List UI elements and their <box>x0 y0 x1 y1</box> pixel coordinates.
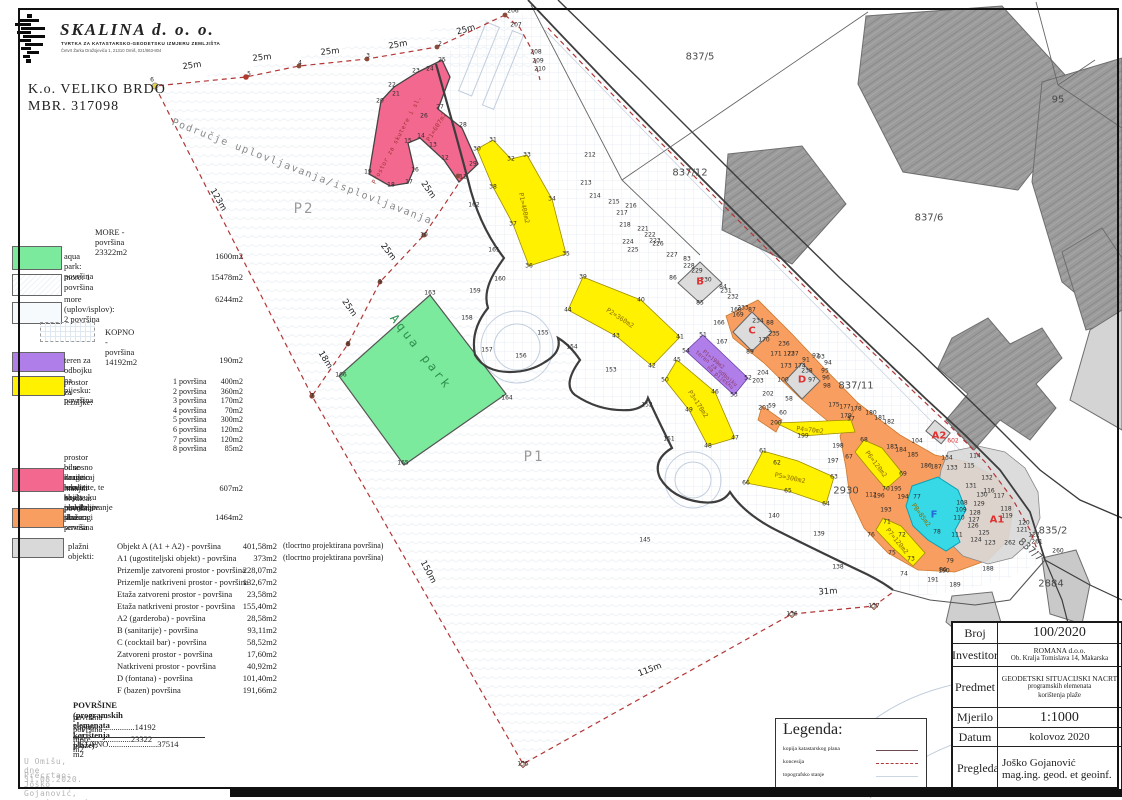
legend-kopno-title: KOPNO - površina 14192m2 <box>105 327 137 367</box>
objekti-row: Objekt A (A1 + A2) - površina401,58m2(tl… <box>117 541 427 553</box>
titleblock-pregledao-value: Joško Gojanović mag.ing. geod. et geoinf… <box>998 747 1121 790</box>
title-block: Broj 100/2020 Investitor ROMANA d.o.o. O… <box>951 621 1122 792</box>
titleblock-broj-label: Broj <box>953 623 998 644</box>
skuteri-value: 607m2 <box>183 483 243 493</box>
legenda-item-kopija: kopija katastarskog plana <box>783 746 840 752</box>
titleblock-investitor-label: Investitor <box>953 644 998 667</box>
titleblock-broj-value: 100/2020 <box>998 623 1121 644</box>
company-name: SKALINA d. o. o. <box>60 20 215 40</box>
scan-edge-bar <box>230 789 1122 797</box>
legenda-line-solid <box>876 750 918 751</box>
lezaljke-row: 2 površina360m2 <box>173 387 243 397</box>
legenda-title: Legenda: <box>783 721 843 739</box>
legend-more2-label: more (uplov/isplov): 2 površina <box>64 294 115 324</box>
lezaljke-row: 1 površina400m2 <box>173 377 243 387</box>
skalina-logo-icon <box>13 14 53 66</box>
objekti-row: Natkriveni prostor - površina40,92m2 <box>117 661 427 673</box>
legend-more1-value: 15478m2 <box>183 272 243 282</box>
objekti-row: Etaža zatvoreni prostor - površina23,58m… <box>117 589 427 601</box>
objekti-row: F (bazen) površina191,66m2 <box>117 685 427 697</box>
titleblock-investitor-value: ROMANA d.o.o. Ob. Kralja Tomislava 14, M… <box>998 644 1121 667</box>
lezaljke-row: 3 površina170m2 <box>173 396 243 406</box>
legend-terasa-label: terasa: površina <box>64 512 93 532</box>
objekti-row: Prizemlje natkriveni prostor - površina1… <box>117 577 427 589</box>
legend-objekti-rows: Objekt A (A1 + A2) - površina401,58m2(tl… <box>117 541 427 697</box>
titleblock-datum-label: Datum <box>953 728 998 747</box>
legend-more2-value: 6244m2 <box>183 294 243 304</box>
lezaljke-row: 7 površina120m2 <box>173 435 243 445</box>
lezaljke-row: 6 površina120m2 <box>173 425 243 435</box>
povrsine-divider <box>73 737 205 738</box>
mbr-number: MBR. 317098 <box>28 99 119 115</box>
swatch-lezaljke <box>12 376 65 396</box>
objekti-row: Prizemlje zatvoreni prostor - površina22… <box>117 565 427 577</box>
legend-objekti-label: plažni objekti: <box>68 541 94 561</box>
legenda-line-dashed <box>876 763 918 764</box>
lezaljke-row: 8 površina85m2 <box>173 444 243 454</box>
legend-lezaljke-rows: 1 površina400m22 površina360m23 površina… <box>173 377 243 454</box>
objekti-row: A2 (garderoba) - površina28,58m2 <box>117 613 427 625</box>
legenda-item-topografsko: topografsko stanje <box>783 772 824 778</box>
lezaljke-row: 4 površina70m2 <box>173 406 243 416</box>
legend-aqua-value: 1600m2 <box>183 251 243 261</box>
legend-terasa-value: 1464m2 <box>183 512 243 522</box>
skuteri-line4: manjih brodica: površina <box>64 483 93 513</box>
objekti-row: B (sanitarije) - površina93,11m2 <box>117 625 427 637</box>
titleblock-mjerilo-value: 1:1000 <box>998 708 1121 728</box>
company-subtitle: TVRTKA ZA KATASTARSKO-GEODETSKU IZMJERU … <box>61 41 220 46</box>
legend-more-title: MORE - površina 23322m2 <box>95 227 127 257</box>
legend-more1-label: more: 1 površina <box>64 272 93 292</box>
legenda-line-light <box>876 776 918 777</box>
lezaljke-row: 5 površina300m2 <box>173 415 243 425</box>
swatch-more-2 <box>12 302 62 324</box>
cadastral-plan-page: 2345678910111213141516171819202122232425… <box>0 0 1122 800</box>
objekti-row: D (fontana) - površina101,40m2 <box>117 673 427 685</box>
footer-author: Precrtao: Joško Gojanović, mag.ing.geod.… <box>24 771 93 800</box>
povrsine-row-more: površina - more...................23322 … <box>73 724 152 736</box>
legenda-box: Legenda: kopija katastarskog plana konce… <box>775 718 927 791</box>
titleblock-pregledao-label: Pregledao: <box>953 747 998 790</box>
swatch-terasa <box>12 508 64 528</box>
titleblock-datum-value: kolovoz 2020 <box>998 728 1121 747</box>
cadastral-municipality: K.o. VELIKO BRDO <box>28 82 166 98</box>
swatch-objekti <box>12 538 64 558</box>
swatch-odbojka <box>12 352 65 372</box>
swatch-skuteri <box>12 468 64 492</box>
swatch-more-1 <box>12 274 62 296</box>
objekti-row: C (cocktail bar) - površina58,52m2 <box>117 637 427 649</box>
legend-odbojka-value: 190m2 <box>183 355 243 365</box>
legenda-item-koncesija: koncesija <box>783 759 804 765</box>
titleblock-predmet-label: Predmet <box>953 667 998 708</box>
povrsine-total: UKUPNO.......................37514 m2 <box>73 739 179 751</box>
titleblock-mjerilo-label: Mjerilo <box>953 708 998 728</box>
swatch-kopno <box>40 322 95 342</box>
objekti-row: A1 (ugostiteljski objekt) - površina373m… <box>117 553 427 565</box>
objekti-row: Zatvoreni prostor - površina17,60m2 <box>117 649 427 661</box>
swatch-aqua-park <box>12 246 62 270</box>
titleblock-predmet-value: GEODETSKI SITUACIJSKI NACRT programskih … <box>998 667 1121 708</box>
legend-lezaljke-label: prostor za ležaljke: <box>64 377 93 407</box>
povrsine-row-kopno: površina - kopno...................14192… <box>73 712 156 724</box>
company-address: Četvrt Žarka Dražojevića 1, 21310 Omiš, … <box>61 48 161 53</box>
objekti-row: Etaža natkriveni prostor - površina155,4… <box>117 601 427 613</box>
